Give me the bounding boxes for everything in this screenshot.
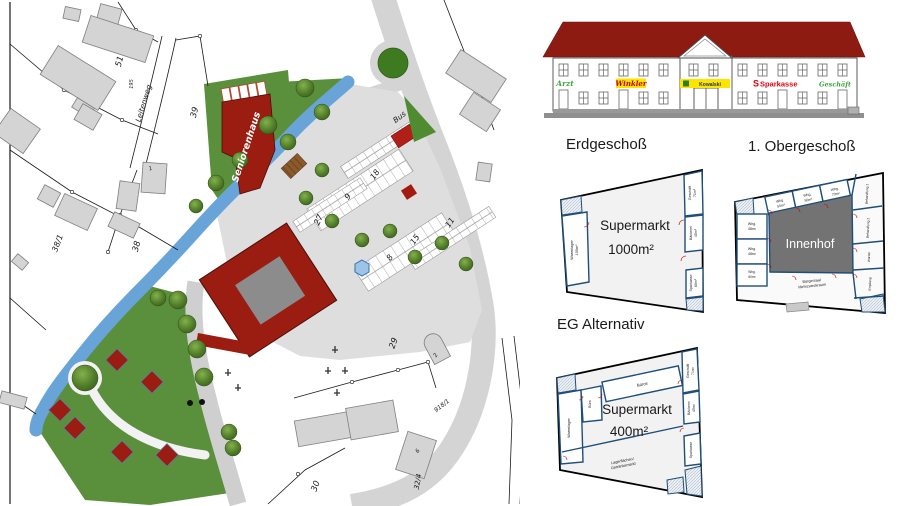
eg-area-label: 1000m² bbox=[608, 242, 654, 257]
sidewalk bbox=[544, 113, 864, 118]
title-erdgeschoss: Erdgeschoß bbox=[566, 136, 647, 153]
sign-kowalski: Kowalski bbox=[699, 82, 721, 88]
eg-sparkasse-label: Sparkasse bbox=[689, 275, 693, 292]
eg-baeckerei-area: 45m² bbox=[694, 228, 698, 237]
og-warten-label: Warten bbox=[867, 251, 871, 262]
og-whg-label: Whg. bbox=[748, 222, 756, 226]
og-whg-area: 48m² bbox=[748, 227, 757, 231]
label-195: 195 bbox=[129, 79, 135, 89]
floorplan-obergeschoss: Whg. 50m² Whg. 50m² Whg. 70m² Whg. 48m² … bbox=[720, 158, 900, 326]
floorplan-erdgeschoss: Supermarkt 1000m² Warenlager 100m² Gesch… bbox=[551, 162, 719, 317]
alt-geschaeft-label: Geschäft bbox=[686, 364, 690, 378]
eg-baeckerei-label: Bäckerei bbox=[689, 226, 693, 240]
og-whg-label: Whg. bbox=[748, 270, 756, 274]
eg-supermarkt-label: Supermarkt bbox=[600, 218, 670, 233]
presentation-page: 51 39 38 38/1 195 Leitenweg Seniorenhaus… bbox=[0, 0, 900, 506]
eg-sparkasse-area: 60m² bbox=[694, 278, 698, 287]
og-whg-label: Whg. bbox=[748, 247, 756, 251]
og-left-rooms: Whg. 48m² Whg. 48m² Whg. 60m² bbox=[737, 214, 767, 286]
innenhof-label: Innenhof bbox=[786, 237, 835, 251]
eg-warenlager-area: 100m² bbox=[575, 244, 579, 255]
stairs-hatch bbox=[686, 297, 703, 311]
eg-geschaeft-label: Geschäft bbox=[688, 186, 692, 200]
sign-sparkasse: Sparkasse bbox=[760, 80, 798, 89]
stairs-hatch bbox=[685, 466, 702, 496]
alt-warenlager-label: Warenlager bbox=[567, 418, 571, 438]
stairs-hatch bbox=[667, 477, 684, 494]
roundabout bbox=[370, 40, 416, 86]
og-whg-area: 60m² bbox=[748, 275, 755, 279]
alt-area-label: 400m² bbox=[610, 424, 649, 439]
alt-baeckerei-area: 45m² bbox=[692, 403, 696, 412]
site-plan: 51 39 38 38/1 195 Leitenweg Seniorenhaus… bbox=[0, 0, 520, 506]
sparkasse-logo-icon: S bbox=[753, 79, 759, 89]
sign-geschaeft: Geschäft bbox=[819, 81, 851, 89]
alt-geschaeft-area: 71m² bbox=[691, 366, 695, 375]
building-elevation: Arzt Winkler Kowalski S Sparkasse Geschä… bbox=[542, 8, 872, 123]
alt-baeckerei-label: Bäckerei bbox=[687, 401, 691, 415]
sign-arzt: Arzt bbox=[555, 79, 574, 88]
fountain bbox=[355, 260, 369, 276]
og-whg-area: 48m² bbox=[748, 252, 757, 256]
eg-warenlager-label: Warenlager bbox=[570, 240, 574, 260]
og-empfang-label: Empfang bbox=[868, 277, 872, 290]
title-eg-alternativ: EG Alternativ bbox=[557, 316, 645, 333]
alt-sparkasse-label: Sparkasse bbox=[689, 442, 693, 459]
plinth bbox=[553, 109, 857, 113]
sign-winkler: Winkler bbox=[615, 79, 647, 88]
kowalski-logo-icon bbox=[683, 81, 689, 87]
alt-buero-label: Büro bbox=[588, 400, 592, 407]
og-behandlung2-label: Behandlung 2 bbox=[866, 218, 871, 239]
og-behandlung1-label: Behandlung 1 bbox=[865, 184, 870, 205]
alt-supermarkt-label: Supermarkt bbox=[602, 402, 672, 417]
floorplan-eg-alternativ: Büros Supermarkt 400m² Warenlager Büro G… bbox=[549, 336, 719, 504]
title-obergeschoss: 1. Obergeschoß bbox=[748, 138, 856, 155]
eg-geschaeft-area: 71m² bbox=[693, 188, 697, 197]
entrance-tab bbox=[786, 302, 809, 312]
